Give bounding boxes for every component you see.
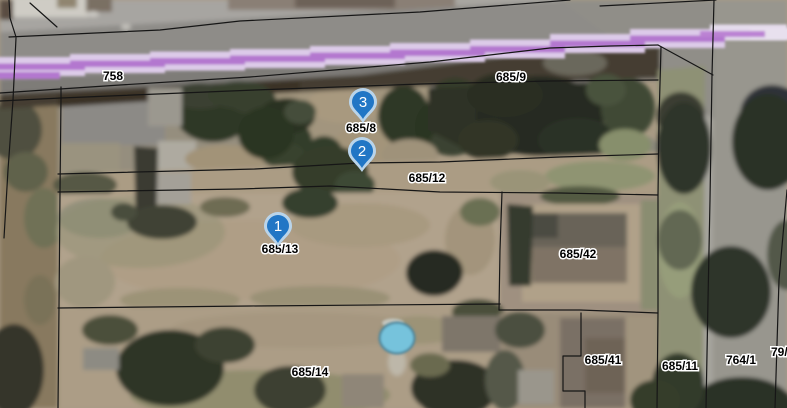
svg-text:3: 3 (359, 94, 367, 111)
svg-text:764/1: 764/1 (726, 353, 756, 367)
svg-text:685/11: 685/11 (662, 359, 698, 373)
svg-text:685/14: 685/14 (292, 365, 329, 379)
svg-text:685/12: 685/12 (409, 171, 446, 185)
svg-text:685/9: 685/9 (496, 70, 526, 84)
svg-text:2: 2 (358, 143, 366, 160)
svg-text:1: 1 (274, 218, 282, 235)
svg-text:685/8: 685/8 (346, 121, 376, 135)
svg-text:685/41: 685/41 (585, 353, 622, 367)
svg-text:79/: 79/ (771, 345, 787, 359)
svg-text:685/42: 685/42 (560, 247, 597, 261)
svg-text:685/13: 685/13 (262, 242, 299, 256)
svg-text:758: 758 (103, 69, 123, 83)
